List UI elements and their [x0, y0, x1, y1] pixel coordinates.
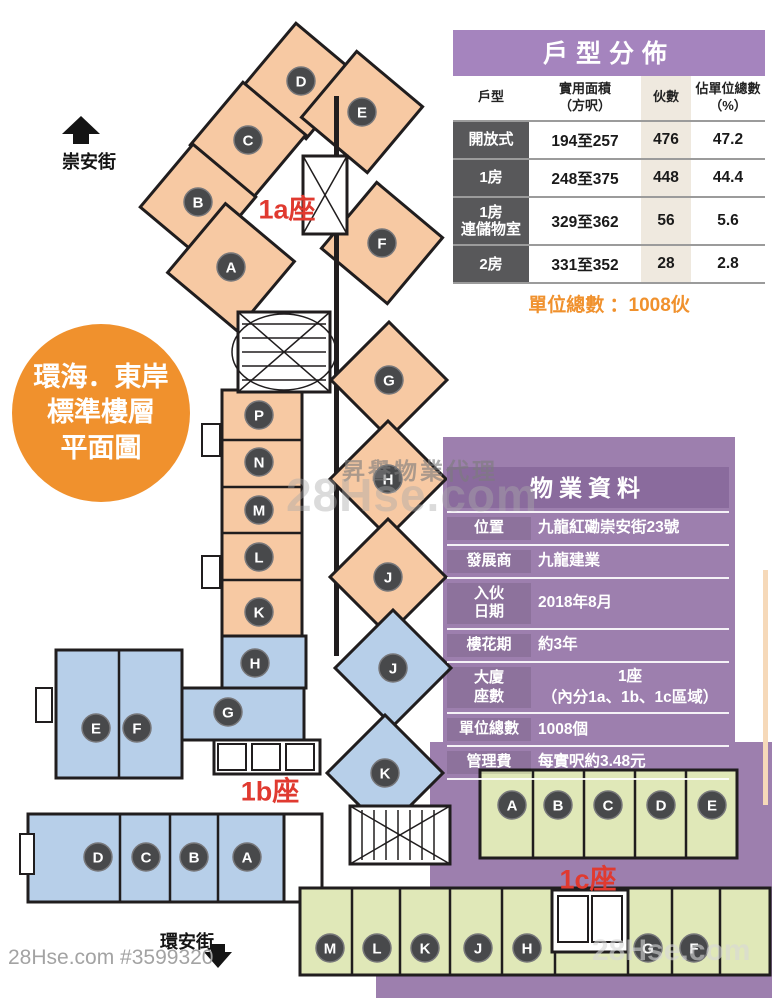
svg-text:E: E — [91, 721, 101, 738]
svg-text:A: A — [242, 850, 253, 867]
unit-badge-1c-F: F — [680, 934, 708, 962]
property-table-title: 物業資料 — [447, 467, 729, 508]
unit-badge-1a-M: M — [245, 496, 273, 524]
unit-count-cell: 448 — [641, 159, 691, 197]
unit-badge-1c-C: C — [594, 791, 622, 819]
svg-text:F: F — [689, 941, 698, 958]
unit-badge-1c-J: J — [464, 934, 492, 962]
stair-core-1c — [350, 806, 450, 864]
unit-badge-1c-E: E — [698, 791, 726, 819]
svg-text:E: E — [357, 105, 367, 122]
property-row-occupation-date: 入伙日期 2018年8月 — [447, 579, 729, 631]
unit-badge-1a-P: P — [245, 401, 273, 429]
col-header-count: 伙數 — [641, 76, 691, 121]
svg-text:K: K — [254, 605, 265, 622]
svg-text:C: C — [243, 133, 254, 150]
property-value: 九龍建業 — [531, 551, 729, 571]
unit-table-header-row: 戶型 實用面積（方呎） 伙數 佔單位總數（%） — [453, 76, 765, 121]
svg-text:J: J — [389, 661, 397, 678]
unit-badge-1a-A: A — [217, 253, 245, 281]
unit-badge-1b-E: E — [82, 714, 110, 742]
unit-badge-1a-L: L — [245, 543, 273, 571]
svg-text:G: G — [383, 373, 395, 390]
property-label: 管理費 — [447, 751, 531, 774]
unit-badge-1a-J: J — [374, 563, 402, 591]
property-label: 大廈座數 — [447, 667, 531, 709]
unit-count-cell: 476 — [641, 121, 691, 159]
unit-badge-1c-M: M — [316, 934, 344, 962]
svg-text:J: J — [474, 941, 482, 958]
svg-text:F: F — [132, 721, 141, 738]
svg-text:M: M — [324, 941, 337, 958]
badge-line2: 標準樓層 — [47, 395, 155, 431]
property-value: 約3年 — [531, 635, 729, 655]
unit-badge-1b-J: J — [379, 654, 407, 682]
wing-label-1b: 1b座 — [241, 770, 300, 809]
svg-text:A: A — [507, 798, 518, 815]
property-value: 每實呎約3.48元 — [531, 752, 729, 772]
unit-badge-1c-A: A — [498, 791, 526, 819]
svg-text:K: K — [380, 766, 391, 783]
unit-badge-1b-F: F — [123, 714, 151, 742]
unit-area-cell: 329至362 — [529, 197, 641, 246]
svg-text:P: P — [254, 408, 264, 425]
unit-badge-1c-B: B — [544, 791, 572, 819]
unit-badge-1c-G: G — [634, 934, 662, 962]
table-row: 2房 331至352 28 2.8 — [453, 245, 765, 282]
property-label: 位置 — [447, 517, 531, 540]
table-row: 開放式 194至257 476 47.2 — [453, 121, 765, 159]
stair-core-central — [232, 312, 336, 392]
unit-badge-1c-L: L — [363, 934, 391, 962]
svg-text:H: H — [383, 472, 394, 489]
badge-line3: 平面圖 — [61, 431, 142, 467]
svg-text:B: B — [193, 195, 204, 212]
unit-count-cell: 56 — [641, 197, 691, 246]
svg-text:N: N — [254, 455, 265, 472]
property-row-location: 位置 九龍紅磡崇安街23號 — [447, 511, 729, 546]
svg-text:A: A — [226, 260, 237, 277]
svg-text:M: M — [253, 503, 266, 520]
svg-text:E: E — [707, 798, 717, 815]
property-info-table: 物業資料 位置 九龍紅磡崇安街23號 發展商 九龍建業 入伙日期 2018年8月… — [447, 467, 729, 780]
street-label-bottom: 環安街 — [160, 928, 214, 954]
unit-area-cell: 194至257 — [529, 121, 641, 159]
svg-text:G: G — [222, 705, 234, 722]
property-value: 1008個 — [531, 720, 729, 740]
svg-text:J: J — [384, 570, 392, 587]
unit-total-footer: 單位總數 ：1008伙 — [453, 282, 765, 321]
property-value: 1座（內分1a、1b、1c區域） — [531, 667, 729, 707]
unit-badge-1a-D: D — [287, 67, 315, 95]
svg-text:G: G — [642, 941, 654, 958]
unit-percent-cell: 44.4 — [691, 159, 765, 197]
lift-core-1c — [552, 890, 628, 952]
unit-badge-1a-C: C — [234, 126, 262, 154]
unit-percent-cell: 5.6 — [691, 197, 765, 246]
svg-text:D: D — [93, 850, 104, 867]
unit-badge-1b-H: H — [241, 649, 269, 677]
col-header-area: 實用面積（方呎） — [529, 76, 641, 121]
unit-badge-1a-N: N — [245, 448, 273, 476]
property-label: 樓花期 — [447, 634, 531, 657]
svg-text:C: C — [141, 850, 152, 867]
unit-badge-1c-H: H — [513, 934, 541, 962]
property-value: 九龍紅磡崇安街23號 — [531, 518, 729, 538]
unit-badge-1b-A: A — [233, 843, 261, 871]
unit-badge-1b-B: B — [180, 843, 208, 871]
unit-badge-1b-G: G — [214, 698, 242, 726]
svg-text:B: B — [189, 850, 200, 867]
svg-text:D: D — [656, 798, 667, 815]
property-value: 2018年8月 — [531, 593, 729, 613]
property-row-towers: 大廈座數 1座（內分1a、1b、1c區域） — [447, 663, 729, 715]
unit-table-title: 戶型分佈 — [453, 30, 765, 76]
unit-badge-1b-K: K — [371, 759, 399, 787]
floorplan-page: DCBAEFPNMLKGHJHGEFJKDCBAABCDEMLKJHGF 環海．… — [0, 0, 772, 1000]
table-row: 1房 248至375 448 44.4 — [453, 159, 765, 197]
property-row-presale-period: 樓花期 約3年 — [447, 630, 729, 663]
unit-badge-1b-D: D — [84, 843, 112, 871]
unit-badge-1c-D: D — [647, 791, 675, 819]
col-header-percent: 佔單位總數（%） — [691, 76, 765, 121]
svg-text:L: L — [372, 941, 381, 958]
property-label: 發展商 — [447, 550, 531, 573]
unit-badge-1b-C: C — [132, 843, 160, 871]
project-name: 環海．東岸 — [34, 360, 169, 396]
svg-text:H: H — [250, 656, 261, 673]
property-label: 單位總數 — [447, 718, 531, 741]
unit-type-cell: 開放式 — [453, 121, 529, 159]
unit-percent-cell: 47.2 — [691, 121, 765, 159]
unit-type-cell: 1房連儲物室 — [453, 197, 529, 246]
svg-text:H: H — [522, 941, 533, 958]
svg-text:K: K — [420, 941, 431, 958]
unit-badge-1a-E: E — [348, 98, 376, 126]
svg-text:D: D — [296, 74, 307, 91]
property-label: 入伙日期 — [447, 583, 531, 625]
unit-badge-1a-G: G — [375, 366, 403, 394]
table-row: 1房連儲物室 329至362 56 5.6 — [453, 197, 765, 246]
unit-count-cell: 28 — [641, 245, 691, 282]
wing-label-1a: 1a座 — [258, 188, 315, 227]
unit-badge-1c-K: K — [411, 934, 439, 962]
unit-type-cell: 1房 — [453, 159, 529, 197]
property-row-total-units: 單位總數 1008個 — [447, 714, 729, 747]
unit-badge-1a-B: B — [184, 188, 212, 216]
unit-badge-1a-F: F — [368, 229, 396, 257]
property-row-developer: 發展商 九龍建業 — [447, 546, 729, 579]
unit-area-cell: 331至352 — [529, 245, 641, 282]
unit-type-cell: 2房 — [453, 245, 529, 282]
north-arrow-icon — [62, 116, 100, 144]
project-badge: 環海．東岸 標準樓層 平面圖 — [12, 324, 190, 502]
svg-text:C: C — [603, 798, 614, 815]
col-header-type: 戶型 — [453, 76, 529, 121]
svg-text:L: L — [254, 550, 263, 567]
property-row-management-fee: 管理費 每實呎約3.48元 — [447, 747, 729, 780]
unit-distribution-table: 戶型分佈 戶型 實用面積（方呎） 伙數 佔單位總數（%） 開放式 194至257… — [453, 30, 765, 321]
unit-percent-cell: 2.8 — [691, 245, 765, 282]
street-label-top: 崇安街 — [62, 148, 116, 174]
unit-badge-1a-H: H — [374, 465, 402, 493]
wing-label-1c: 1c座 — [559, 858, 616, 897]
unit-badge-1a-K: K — [245, 598, 273, 626]
svg-text:B: B — [553, 798, 564, 815]
unit-area-cell: 248至375 — [529, 159, 641, 197]
svg-text:F: F — [377, 236, 386, 253]
